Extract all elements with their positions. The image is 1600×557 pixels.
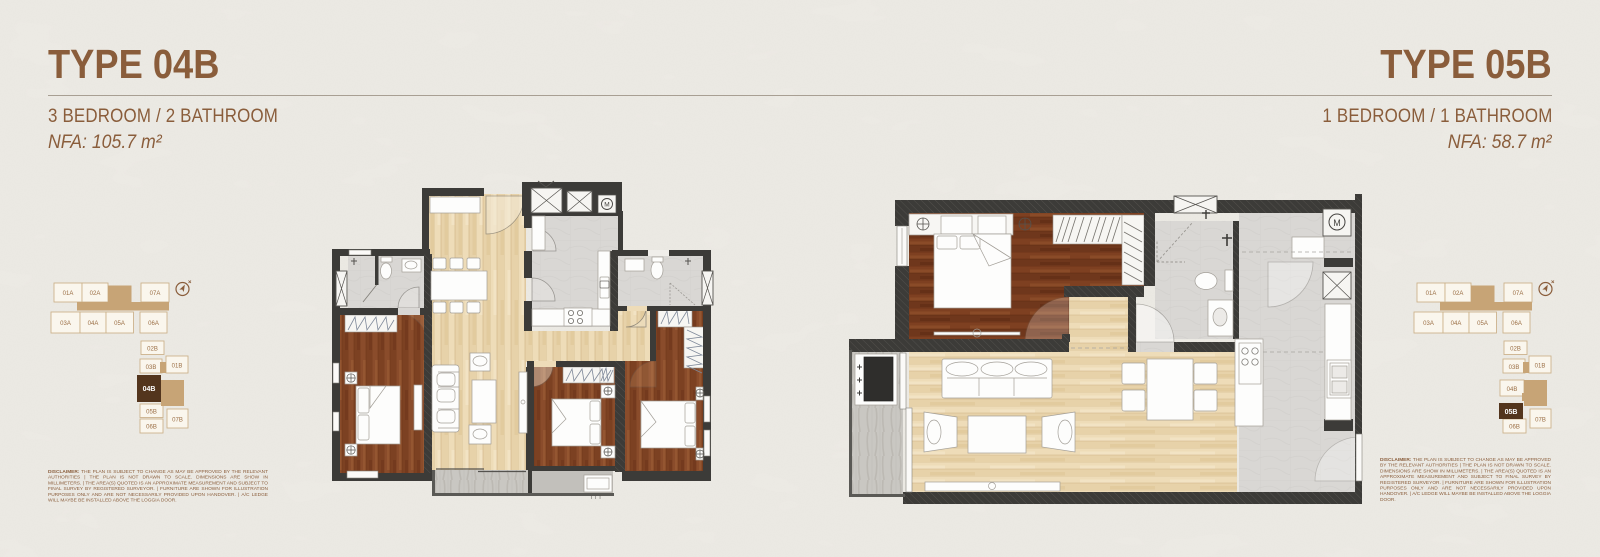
svg-text:01A: 01A xyxy=(63,291,74,297)
svg-text:06B: 06B xyxy=(146,425,157,431)
svg-text:01B: 01B xyxy=(1535,364,1546,370)
svg-text:04A: 04A xyxy=(88,321,99,327)
svg-text:M: M xyxy=(604,202,609,209)
svg-text:03A: 03A xyxy=(1423,321,1434,327)
svg-text:03B: 03B xyxy=(146,365,157,371)
svg-text:07B: 07B xyxy=(172,418,183,424)
svg-text:02A: 02A xyxy=(90,291,101,297)
svg-text:04A: 04A xyxy=(1451,321,1462,327)
svg-text:04B: 04B xyxy=(143,386,156,393)
svg-text:M: M xyxy=(1333,218,1341,228)
svg-text:01B: 01B xyxy=(172,364,183,370)
svg-text:05B: 05B xyxy=(1505,409,1518,416)
svg-text:07A: 07A xyxy=(1513,291,1524,297)
svg-text:05A: 05A xyxy=(1477,321,1488,327)
svg-text:05A: 05A xyxy=(114,321,125,327)
svg-text:07B: 07B xyxy=(1535,418,1546,424)
svg-text:02B: 02B xyxy=(147,347,158,353)
svg-text:06B: 06B xyxy=(1509,425,1520,431)
svg-text:T T T: T T T xyxy=(590,495,602,501)
svg-text:03A: 03A xyxy=(60,321,71,327)
svg-text:06A: 06A xyxy=(148,321,159,327)
svg-text:02B: 02B xyxy=(1510,347,1521,353)
svg-text:06A: 06A xyxy=(1511,321,1522,327)
svg-text:05B: 05B xyxy=(146,410,157,416)
svg-text:01A: 01A xyxy=(1426,291,1437,297)
svg-text:07A: 07A xyxy=(150,291,161,297)
svg-text:02A: 02A xyxy=(1453,291,1464,297)
svg-text:03B: 03B xyxy=(1509,365,1520,371)
svg-text:04B: 04B xyxy=(1507,387,1518,393)
